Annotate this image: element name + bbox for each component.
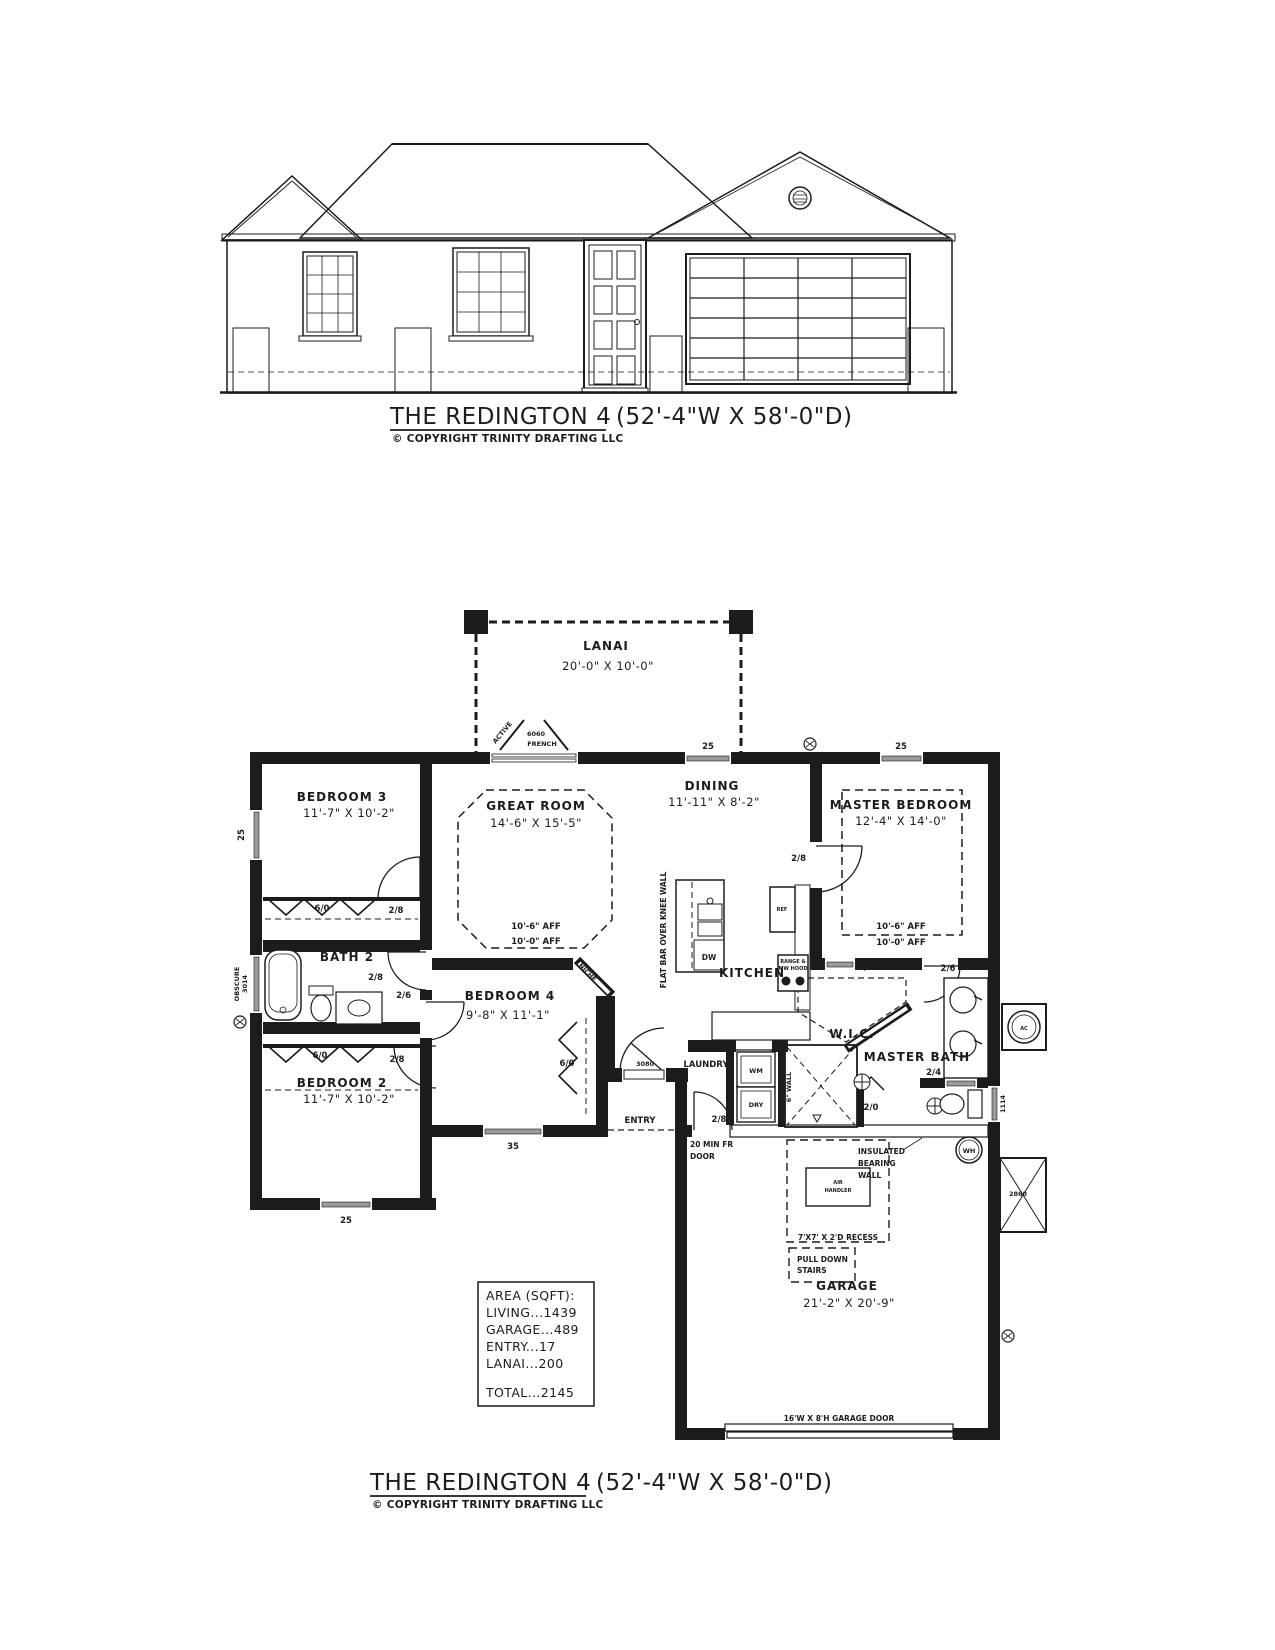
room-label-bedroom2: BEDROOM 2 <box>297 1076 387 1090</box>
door-20-label: 2/0 <box>864 1103 879 1113</box>
washer-label: WM <box>749 1067 763 1075</box>
closet-60-label: 6/0 <box>313 1051 328 1061</box>
closet-60-label: 6/0 <box>315 904 330 914</box>
area-table-row: LANAI...200 <box>486 1356 564 1371</box>
window-25-label: 25 <box>895 742 907 752</box>
kitchen-counter <box>712 1012 810 1040</box>
insulated-bearing-wall: INSULATED BEARING WALL <box>687 1125 988 1180</box>
door-french-label: FRENCH <box>527 740 557 748</box>
refrigerator: REF <box>770 887 795 932</box>
garage-door-label: 16'W X 8'H GARAGE DOOR <box>784 1414 895 1423</box>
area-table-row: ENTRY...17 <box>486 1339 556 1354</box>
drawing-sheet: THE REDINGTON 4 (52'-4"W X 58'-0"D) © CO… <box>0 0 1275 1650</box>
room-label-bedroom3: BEDROOM 3 <box>297 790 387 804</box>
insulated-wall-label-1: INSULATED <box>858 1147 905 1156</box>
pull-down-label-2: STAIRS <box>797 1266 827 1275</box>
stone-accent <box>908 328 944 392</box>
window-2860-label: 2860 <box>1009 1190 1028 1198</box>
room-label-lanai: LANAI <box>583 639 629 653</box>
door-active-label: ACTIVE <box>491 720 514 745</box>
insulated-wall-label-2: BEARING <box>858 1159 896 1168</box>
room-label-great-room: GREAT ROOM <box>486 799 586 813</box>
six-inch-wall-label: 6" WALL <box>785 1072 793 1102</box>
room-label-master-bath: MASTER BATH <box>864 1050 970 1064</box>
hose-bibs <box>234 738 1014 1342</box>
elevation-front-door <box>582 240 648 392</box>
window-1114-label: 1114 <box>999 1094 1007 1113</box>
door-26-label: 2/6 <box>396 991 411 1001</box>
copyright-note: © COPYRIGHT TRINITY DRAFTING LLC <box>372 1499 604 1511</box>
plan-title-block: THE REDINGTON 4 (52'-4"W X 58'-0"D) © CO… <box>369 1470 832 1511</box>
recess-label: 7'X7' X 2'D RECESS <box>798 1233 878 1242</box>
door-28-label: 2/8 <box>389 906 404 916</box>
master-aff-upper: 10'-6" AFF <box>876 922 926 932</box>
obscure-window-label: OBSCURE <box>233 967 241 1002</box>
area-table-row: GARAGE...489 <box>486 1322 579 1337</box>
door-28-label: 2/8 <box>791 854 806 864</box>
room-label-master-bedroom: MASTER BEDROOM <box>830 798 973 812</box>
door-swings <box>378 846 960 1130</box>
room-label-entry: ENTRY <box>625 1116 657 1126</box>
room-dims-bedroom2: 11'-7" X 10'-2" <box>303 1092 395 1106</box>
elevation-title-block: THE REDINGTON 4 (52'-4"W X 58'-0"D) © CO… <box>389 404 852 445</box>
area-table-total: TOTAL...2145 <box>485 1385 574 1400</box>
window-25-label: 25 <box>340 1216 352 1226</box>
room-label-kitchen: KITCHEN <box>719 966 785 980</box>
area-table-header: AREA (SQFT): <box>486 1288 575 1303</box>
ac-unit: AC <box>1002 1004 1046 1050</box>
elevation-window-mid <box>449 248 533 341</box>
french-door: ACTIVE 6060 FRENCH <box>490 720 578 764</box>
area-table: AREA (SQFT): LIVING...1439 GARAGE...489 … <box>478 1282 594 1406</box>
laundry-fixtures: WM DRY <box>737 1052 775 1122</box>
front-elevation-drawing <box>220 144 957 393</box>
flat-bar-label: FLAT BAR OVER KNEE WALL <box>659 872 668 989</box>
great-room-aff-lower: 10'-0" AFF <box>511 937 561 947</box>
main-hip-roof <box>300 144 752 238</box>
dryer-label: DRY <box>749 1101 764 1109</box>
wh-label: WH <box>963 1147 976 1155</box>
room-dims-master-bedroom: 12'-4" X 14'-0" <box>855 814 947 828</box>
fire-door-label-2: DOOR <box>690 1152 715 1161</box>
pull-down-label-1: PULL DOWN <box>797 1255 848 1264</box>
closet-60-label: 6/0 <box>560 1059 575 1069</box>
ac-label: AC <box>1020 1026 1028 1032</box>
window-25-label: 25 <box>702 742 714 752</box>
master-aff-lower: 10'-0" AFF <box>876 938 926 948</box>
page-title-dims: (52'-4"W X 58'-0"D) <box>616 404 852 430</box>
air-handler-label-1: AIR <box>833 1180 843 1186</box>
ref-label: REF <box>777 907 788 913</box>
room-dims-lanai: 20'-0" X 10'-0" <box>562 659 654 673</box>
house-plan-svg: THE REDINGTON 4 (52'-4"W X 58'-0"D) © CO… <box>0 0 1275 1650</box>
plan-title: THE REDINGTON 4 <box>369 1470 591 1496</box>
range-label-1: RANGE & <box>780 959 806 965</box>
elevation-window-left <box>299 252 361 341</box>
door-6060-label: 6060 <box>527 730 546 738</box>
room-label-garage: GARAGE <box>816 1279 878 1293</box>
air-handler-label-2: HANDLER <box>825 1188 852 1194</box>
window-24-label: 2/4 <box>926 1068 941 1078</box>
door-28-label: 2/8 <box>390 1055 405 1065</box>
floor-plan-drawing: LANAI 20'-0" X 10'-0" INSULATED BEARING … <box>233 610 1046 1440</box>
window-25-label: 25 <box>237 829 247 841</box>
stone-accent <box>233 328 269 392</box>
water-heater: WH <box>956 1137 982 1163</box>
dishwasher-label: DW <box>702 953 717 962</box>
page-title: THE REDINGTON 4 <box>389 404 611 430</box>
window-3014-label: 3014 <box>241 974 249 993</box>
area-table-row: LIVING...1439 <box>486 1305 577 1320</box>
door-28-label: 2/8 <box>709 1043 724 1053</box>
stone-accent <box>650 336 682 392</box>
copyright-note: © COPYRIGHT TRINITY DRAFTING LLC <box>392 433 624 445</box>
room-dims-dining: 11'-11" X 8'-2" <box>668 795 760 809</box>
door-26-label: 2/6 <box>941 964 956 974</box>
door-28-label: 2/8 <box>712 1115 727 1125</box>
room-label-bedroom4: BEDROOM 4 <box>465 989 555 1003</box>
kitchen-island: DW <box>676 880 724 972</box>
gable-vent <box>789 187 811 209</box>
stone-accent <box>395 328 431 392</box>
fire-door-label-1: 20 MIN FR <box>690 1140 733 1149</box>
window-35-label: 35 <box>507 1142 519 1152</box>
door-3080-label: 3080 <box>636 1060 655 1068</box>
left-gable <box>222 176 362 240</box>
window-24-label: 2/4 <box>858 963 873 973</box>
room-label-bath2: BATH 2 <box>320 950 374 964</box>
room-dims-bedroom4: 9'-8" X 11'-1" <box>466 1008 550 1022</box>
plan-title-dims: (52'-4"W X 58'-0"D) <box>596 1470 832 1496</box>
elevation-garage-door <box>686 254 910 384</box>
great-room-aff-upper: 10'-6" AFF <box>511 922 561 932</box>
room-dims-garage: 21'-2" X 20'-9" <box>803 1296 895 1310</box>
room-label-wic: W.I.C. <box>829 1027 874 1041</box>
door-28-label: 2/8 <box>368 973 383 983</box>
room-dims-bedroom3: 11'-7" X 10'-2" <box>303 806 395 820</box>
garage-door-panel <box>725 1424 953 1431</box>
room-label-laundry: LAUNDRY <box>683 1060 729 1070</box>
room-label-dining: DINING <box>685 779 740 793</box>
room-dims-great-room: 14'-6" X 15'-5" <box>490 816 582 830</box>
